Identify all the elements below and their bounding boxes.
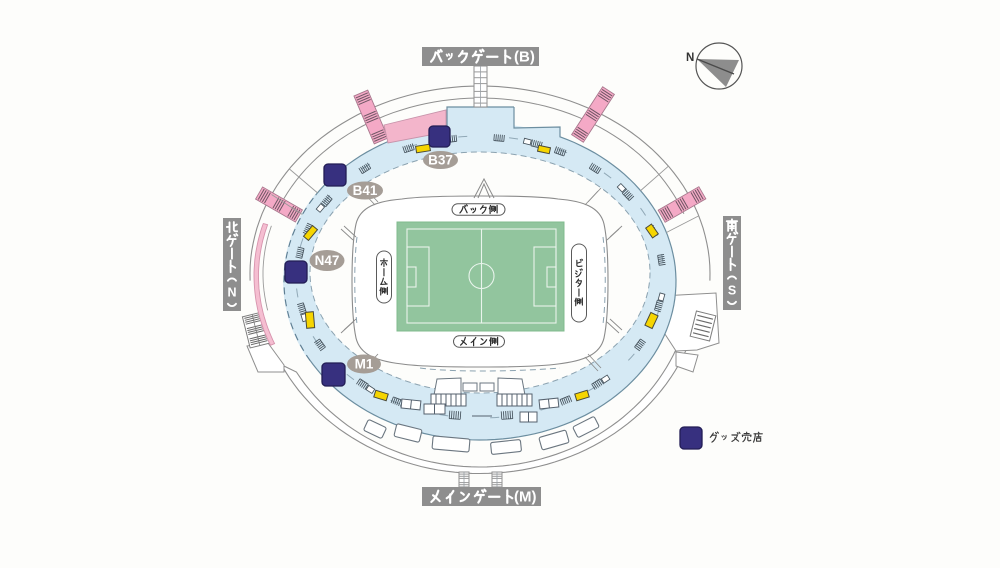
svg-text:M1: M1: [355, 357, 374, 372]
svg-text:S: S: [728, 284, 736, 298]
svg-text:(B): (B): [514, 49, 535, 66]
svg-text:N47: N47: [315, 253, 340, 268]
svg-text:N: N: [227, 286, 236, 300]
svg-text:B41: B41: [353, 183, 378, 198]
svg-text:B37: B37: [428, 153, 453, 168]
svg-text:N: N: [686, 52, 694, 64]
svg-text:(M): (M): [514, 489, 537, 506]
